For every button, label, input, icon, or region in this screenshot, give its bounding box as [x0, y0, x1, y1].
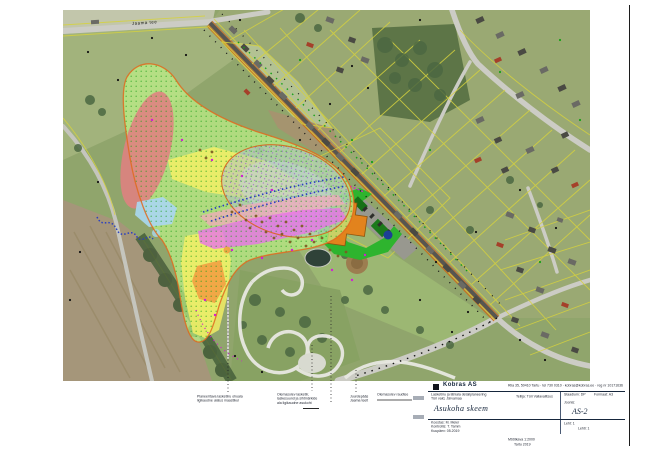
title-block: Kobras AS Riia 35, 50410 Tartu · tel 730…	[428, 381, 625, 453]
annotation-danger-zone: Planeeritava lasketiiru ohuala ligikaudn…	[197, 395, 288, 412]
facility-blue-feature	[384, 231, 393, 240]
drawing-number: AS-2	[572, 407, 588, 416]
drawing-number-label: Joonis:	[564, 401, 575, 405]
project-location: Türi vald, Järvamaa	[431, 397, 486, 401]
title-block-divider	[560, 420, 561, 434]
annotation-underline	[303, 408, 319, 409]
annotation-line: Olemasolev raudtee	[377, 393, 408, 397]
footer-city-year: Tartu 2019	[514, 443, 531, 447]
scale-line: Mõõtkava 1:2000	[508, 438, 535, 442]
pond	[305, 249, 331, 267]
client-line: Tellija: Türi Vallavalitsus	[516, 395, 553, 399]
annotation-line: ligikaudne ulatus maastikul	[197, 399, 243, 403]
title-block-rule	[428, 419, 625, 420]
stage-line: Staadium: DP	[564, 393, 586, 397]
annotation-line: Jaama teelt	[350, 399, 368, 403]
drawing-title: Asukoha skeem	[434, 404, 488, 413]
date-line: Kuupäev: 05.2019	[431, 429, 460, 433]
annotation-existing-range: Olemasolev lasketiir, laskesuund ja siht…	[277, 393, 358, 418]
sheet-frame-line	[629, 5, 630, 446]
format-line: Formaat: A3	[594, 393, 613, 397]
company-name: Kobras AS	[443, 382, 477, 388]
plan-sheet: Jaama tee Planeeritava lasketiiru ohuala…	[0, 0, 650, 459]
sheets-line: Lehti: 1	[578, 427, 589, 431]
title-block-rule	[428, 391, 625, 392]
company-info: Riia 35, 50410 Tartu · tel 730 0310 · ko…	[494, 384, 623, 388]
sheet-line: Leht: 1	[564, 422, 575, 426]
title-block-divider	[560, 392, 561, 419]
annotation-line: ala ligikaudne asukoht	[277, 401, 317, 405]
company-logo	[433, 384, 439, 390]
